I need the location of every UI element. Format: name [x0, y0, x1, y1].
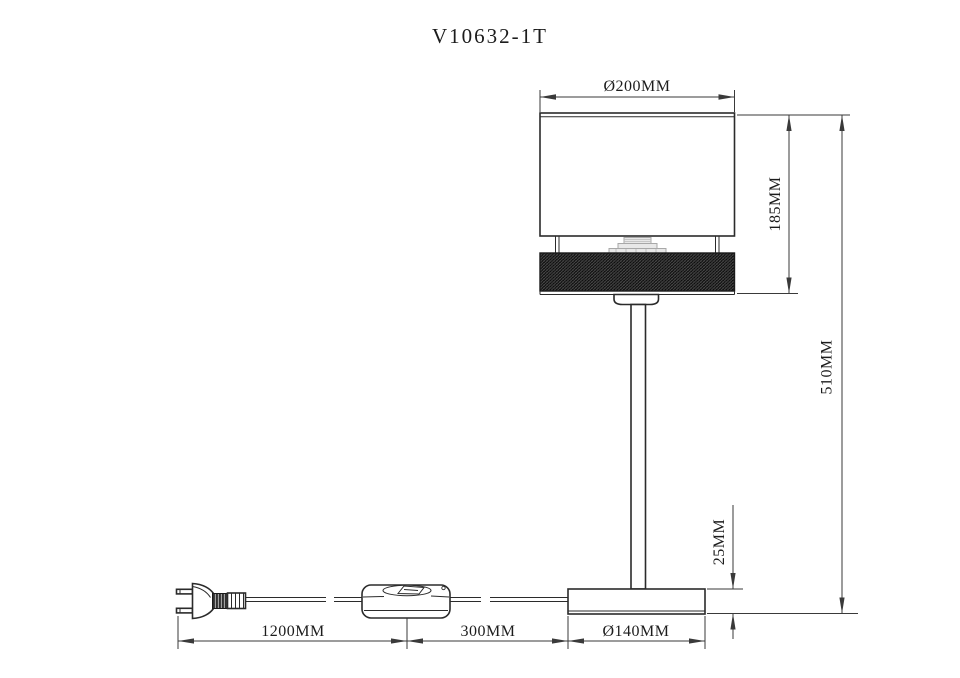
dim-shade-height: 185MM — [737, 115, 850, 294]
dim-label-switch-section: 300MM — [461, 623, 516, 640]
lamp-technical-drawing-page: V10632-1T Ø200MM 185MM 510MM — [0, 0, 960, 678]
dim-label-base-height: 25MM — [711, 519, 728, 565]
lamp-shade — [540, 113, 735, 236]
dim-bottom-chain: 1200MM 300MM Ø140MM — [178, 616, 705, 649]
power-plug — [177, 584, 246, 619]
lamp-base — [568, 589, 705, 614]
lamp-socket — [609, 238, 666, 254]
dim-label-base-diameter: Ø140MM — [602, 623, 669, 640]
dimension-annotations: Ø200MM 185MM 510MM 25MM — [178, 78, 858, 649]
inline-switch — [362, 585, 450, 641]
lamp-stem — [631, 305, 646, 590]
table-lamp — [177, 113, 735, 641]
plug-neck — [213, 594, 228, 609]
dim-shade-diameter: Ø200MM — [540, 78, 735, 112]
dim-label-cord-length: 1200MM — [261, 623, 324, 640]
knurled-band — [540, 253, 735, 295]
plug-strain-relief — [228, 593, 246, 609]
dim-label-shade-height: 185MM — [767, 177, 784, 232]
technical-drawing: V10632-1T Ø200MM 185MM 510MM — [0, 0, 960, 678]
switch-screw — [442, 586, 445, 589]
dim-label-total-height: 510MM — [819, 340, 836, 395]
stem-collar — [614, 295, 659, 305]
dim-base-height: 25MM — [707, 505, 743, 639]
drawing-title: V10632-1T — [432, 24, 548, 48]
dim-label-shade-diameter: Ø200MM — [603, 78, 670, 95]
